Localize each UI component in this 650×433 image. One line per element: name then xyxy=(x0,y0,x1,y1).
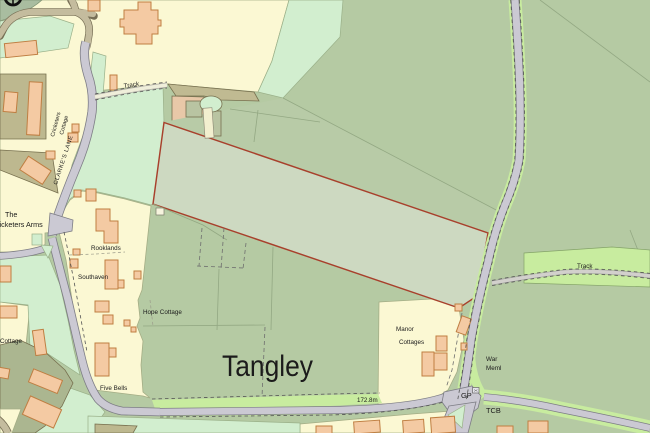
svg-text:GP: GP xyxy=(461,391,472,400)
svg-text:Cottages: Cottages xyxy=(399,339,424,346)
svg-text:TCB: TCB xyxy=(486,406,501,415)
svg-text:Rooklands: Rooklands xyxy=(91,245,121,252)
svg-text:Track: Track xyxy=(577,263,593,270)
svg-text:Cricketers Arms: Cricketers Arms xyxy=(0,220,43,229)
svg-text:Meml: Meml xyxy=(486,365,501,372)
svg-text:Tangley: Tangley xyxy=(222,350,313,383)
svg-text:Hope Cottage: Hope Cottage xyxy=(143,309,182,316)
svg-text:Cottage: Cottage xyxy=(0,338,23,345)
svg-text:Southaven: Southaven xyxy=(78,274,109,281)
svg-text:172.8m: 172.8m xyxy=(357,397,378,404)
svg-text:Five Bells: Five Bells xyxy=(100,385,127,392)
svg-text:War: War xyxy=(486,356,497,363)
svg-text:The: The xyxy=(5,210,17,219)
svg-text:Manor: Manor xyxy=(396,326,414,333)
